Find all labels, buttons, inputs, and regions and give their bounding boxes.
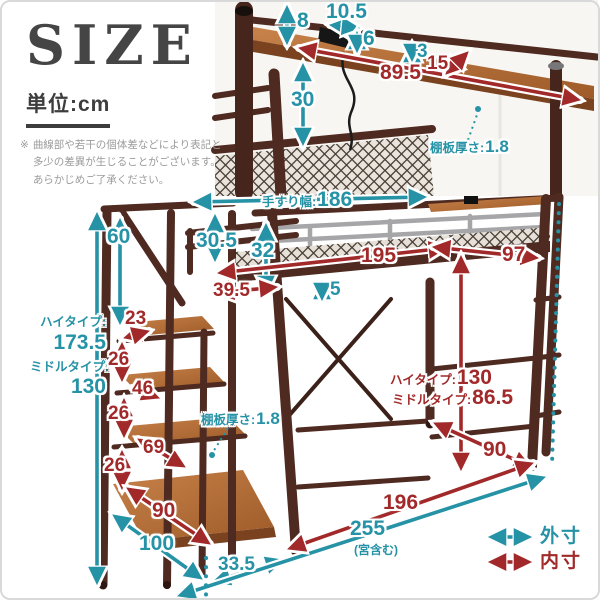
note-text: 曲線部や若干の個体差などにより表記と 多少の差異が生じることがございます。 あら… bbox=[33, 137, 222, 189]
dim-tap-height: 6 bbox=[363, 28, 375, 49]
dim-stair-base-depth: 100 bbox=[139, 533, 174, 554]
disclaimer-note: ※ 曲線部や若干の個体差などにより表記と 多少の差異が生じることがございます。 … bbox=[20, 137, 235, 189]
dim-riser2: 26 bbox=[108, 404, 129, 423]
dim-total-height: ハイタイプ: 173.5 ミドルタイプ: 130 bbox=[30, 316, 106, 400]
dim-inner-depth: 90 bbox=[483, 439, 506, 460]
dim-inner-length: 195 bbox=[361, 245, 396, 266]
dim-step2-depth: 46 bbox=[132, 379, 153, 398]
unit-label: 単位:cm bbox=[26, 88, 199, 118]
dim-shelf-depth: 15 bbox=[427, 54, 448, 73]
dim-step1-depth: 23 bbox=[125, 309, 146, 328]
legend-inner-label: 内寸 bbox=[540, 552, 582, 571]
dim-stair-base-width: 33.5 bbox=[218, 555, 255, 574]
projection-line-right bbox=[552, 204, 559, 466]
dim-post-top: 8 bbox=[297, 10, 309, 31]
page-title: SIZE bbox=[26, 18, 199, 72]
unit-underline bbox=[26, 124, 110, 128]
legend-outer-label: 外寸 bbox=[540, 527, 582, 546]
dim-shelf-height: 30 bbox=[291, 89, 314, 110]
dim-handrail-width: 手すり幅:186 bbox=[262, 189, 352, 210]
dim-riser1: 26 bbox=[108, 350, 129, 369]
dim-frame-thickness: 5 bbox=[330, 280, 341, 299]
dim-step4-depth: 90 bbox=[152, 500, 175, 521]
dim-clearance-high: ハイタイプ:130 bbox=[390, 367, 492, 388]
dim-footprint-inner: 196 bbox=[383, 492, 418, 513]
header: SIZE 単位:cm bbox=[26, 18, 199, 128]
dim-step3-depth: 69 bbox=[143, 438, 164, 457]
dim-clearance-middle: ミドルタイプ:86.5 bbox=[392, 387, 513, 408]
dim-stair-rail-height: 60 bbox=[107, 226, 130, 247]
dim-shelf-inner-width: 89.5 bbox=[380, 62, 421, 83]
dim-riser3: 26 bbox=[104, 456, 125, 475]
dim-board-thickness-top: 棚板厚さ:1.8 bbox=[430, 138, 509, 155]
dim-deck-inset: 39.5 bbox=[213, 281, 250, 300]
dim-inner-width: 97 bbox=[502, 244, 525, 265]
dim-footprint-outer-note: (宮含む) bbox=[354, 544, 398, 556]
dim-board-thickness-stairs: 棚板厚さ:1.8 bbox=[201, 410, 280, 427]
dim-footprint-outer: 255 bbox=[350, 518, 385, 539]
dim-guard-upper: 30.5 bbox=[196, 230, 237, 251]
note-mark: ※ bbox=[20, 137, 29, 189]
dim-tap-width: 10.5 bbox=[326, 1, 367, 22]
size-diagram: .u{stroke:#fff;stroke-width:8;fill:none;… bbox=[0, 0, 600, 600]
dim-guard-total: 32 bbox=[251, 240, 274, 261]
dim-clearance: 3 bbox=[417, 42, 428, 61]
